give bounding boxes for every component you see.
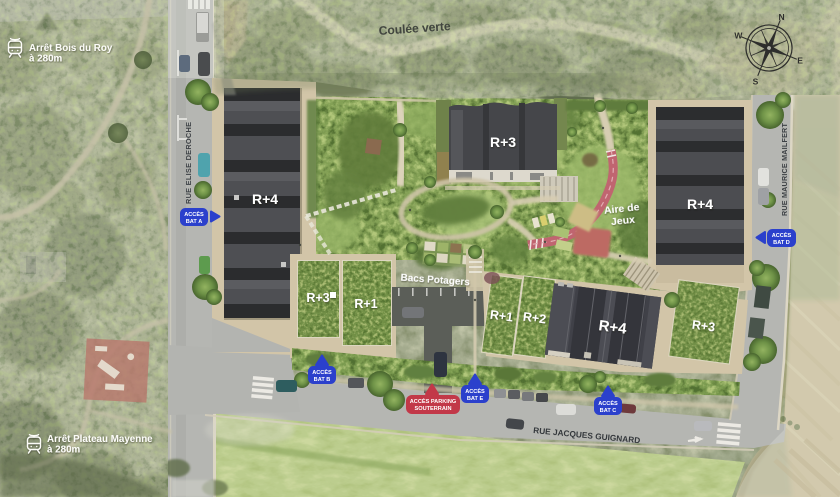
svg-text:E: E: [797, 56, 803, 66]
svg-text:BAT D: BAT D: [773, 240, 790, 246]
svg-text:R+3: R+3: [490, 134, 516, 150]
svg-text:ACCÈS PARKING: ACCÈS PARKING: [410, 397, 457, 405]
svg-text:BAT C: BAT C: [600, 408, 617, 414]
svg-text:Arrêt Plateau Mayenne: Arrêt Plateau Mayenne: [47, 434, 153, 445]
svg-text:N: N: [778, 12, 784, 22]
svg-text:BAT E: BAT E: [467, 396, 484, 402]
svg-text:ACCÈS: ACCÈS: [772, 231, 792, 239]
svg-text:Arrêt Bois du Roy: Arrêt Bois du Roy: [29, 43, 113, 54]
svg-text:ACCÈS: ACCÈS: [184, 210, 204, 218]
svg-text:à 280m: à 280m: [47, 445, 81, 456]
svg-text:S: S: [753, 76, 759, 86]
svg-text:RUE ELISE DEROCHE: RUE ELISE DEROCHE: [184, 122, 193, 204]
svg-text:ACCÈS: ACCÈS: [312, 368, 332, 376]
svg-text:R+4: R+4: [687, 196, 713, 212]
svg-text:BAT A: BAT A: [186, 219, 202, 225]
svg-text:R+4: R+4: [252, 191, 278, 207]
svg-text:ACCÈS: ACCÈS: [598, 399, 618, 407]
svg-text:R+1: R+1: [354, 297, 377, 311]
svg-text:W: W: [734, 31, 743, 41]
svg-text:R+3: R+3: [306, 291, 329, 305]
svg-text:BAT B: BAT B: [314, 377, 331, 383]
svg-text:RUE MAURICE MAILFERT: RUE MAURICE MAILFERT: [780, 123, 789, 216]
svg-text:SOUTERRAIN: SOUTERRAIN: [415, 406, 452, 412]
svg-text:ACCÈS: ACCÈS: [465, 387, 485, 395]
svg-text:à 280m: à 280m: [29, 54, 63, 65]
svg-text:Jeux: Jeux: [610, 214, 635, 228]
